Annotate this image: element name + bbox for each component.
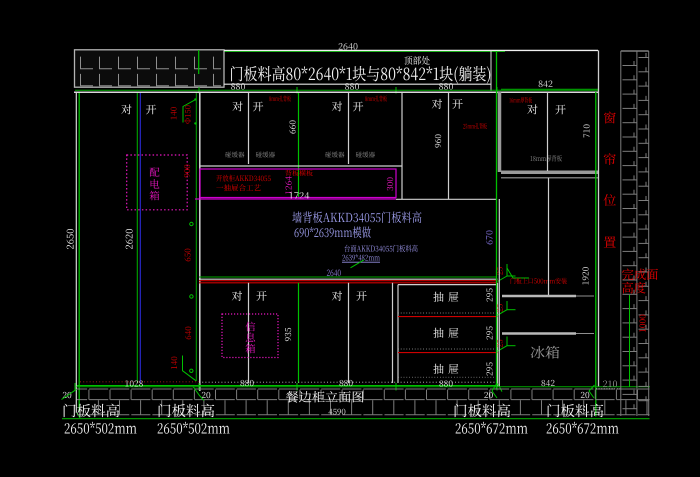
svg-text:8mm孔背板: 8mm孔背板 — [365, 94, 387, 103]
svg-text:开: 开 — [353, 99, 364, 115]
svg-text:16mm厚背板: 16mm厚背板 — [509, 96, 532, 105]
svg-text:300: 300 — [384, 177, 396, 191]
svg-text:开: 开 — [452, 96, 463, 112]
svg-text:20: 20 — [62, 389, 72, 401]
svg-text:900: 900 — [182, 164, 193, 178]
svg-text:880: 880 — [345, 80, 360, 93]
svg-text:2620: 2620 — [122, 229, 136, 250]
svg-text:对: 对 — [232, 99, 243, 115]
svg-text:880: 880 — [231, 80, 246, 93]
svg-text:1000: 1000 — [637, 314, 649, 333]
svg-text:箱: 箱 — [245, 342, 256, 357]
svg-text:295: 295 — [483, 362, 495, 376]
svg-text:295: 295 — [483, 288, 495, 302]
svg-text:842: 842 — [541, 377, 555, 389]
svg-text:2650*672mm: 2650*672mm — [455, 418, 528, 439]
svg-text:开: 开 — [253, 99, 264, 115]
svg-text:冰箱: 冰箱 — [530, 343, 560, 363]
svg-text:对: 对 — [332, 99, 343, 115]
svg-text:屉: 屉 — [448, 289, 459, 305]
svg-text:140: 140 — [169, 356, 180, 370]
svg-text:箱: 箱 — [149, 189, 160, 204]
svg-text:670: 670 — [483, 230, 496, 245]
svg-text:2650*502mm: 2650*502mm — [157, 418, 230, 439]
svg-text:抽: 抽 — [433, 289, 444, 305]
svg-text:960: 960 — [432, 134, 444, 148]
svg-text:1724: 1724 — [289, 188, 311, 202]
svg-text:抽: 抽 — [433, 325, 444, 341]
svg-text:1920: 1920 — [580, 266, 592, 285]
svg-text:842: 842 — [538, 77, 553, 90]
svg-text:935: 935 — [282, 327, 294, 341]
svg-text:置: 置 — [603, 232, 616, 251]
svg-text:8mm孔背板: 8mm孔背板 — [269, 94, 291, 103]
svg-text:碰缓器: 碰缓器 — [356, 150, 376, 159]
svg-text:Φ150: Φ150 — [183, 105, 194, 124]
svg-text:窗: 窗 — [603, 108, 616, 127]
svg-text:屉: 屉 — [448, 361, 459, 377]
svg-text:880: 880 — [439, 80, 454, 93]
svg-text:4590: 4590 — [328, 407, 346, 418]
svg-text:1028: 1028 — [125, 378, 144, 390]
svg-text:对: 对 — [121, 101, 132, 117]
svg-text:一抽屉合工艺: 一抽屉合工艺 — [216, 183, 261, 194]
svg-text:对: 对 — [432, 96, 443, 112]
svg-text:18mm厚背板: 18mm厚背板 — [530, 154, 562, 164]
svg-text:对: 对 — [232, 288, 243, 304]
svg-text:140: 140 — [169, 106, 180, 120]
svg-text:2650: 2650 — [63, 229, 77, 250]
svg-text:2650*672mm: 2650*672mm — [546, 418, 619, 439]
svg-text:2650*502mm: 2650*502mm — [64, 418, 137, 439]
svg-text:对: 对 — [332, 288, 343, 304]
svg-text:屉: 屉 — [448, 325, 459, 341]
svg-text:位: 位 — [603, 190, 616, 209]
svg-text:高度: 高度 — [622, 279, 647, 297]
svg-text:880: 880 — [439, 378, 453, 390]
svg-text:660: 660 — [287, 120, 299, 134]
svg-text:碰缓器: 碰缓器 — [256, 150, 276, 159]
svg-text:640: 640 — [183, 326, 194, 340]
svg-text:25mm孔背板: 25mm孔背板 — [463, 122, 487, 131]
svg-text:650: 650 — [183, 248, 194, 262]
svg-text:餐边柜立面图: 餐边柜立面图 — [286, 388, 365, 406]
svg-text:880: 880 — [240, 377, 254, 389]
svg-text:开: 开 — [356, 288, 367, 304]
svg-text:210: 210 — [603, 377, 618, 390]
svg-text:2640: 2640 — [327, 266, 342, 279]
svg-text:710: 710 — [581, 124, 593, 138]
svg-text:20: 20 — [580, 389, 590, 401]
svg-text:开: 开 — [555, 101, 566, 117]
svg-text:295: 295 — [483, 326, 495, 340]
svg-text:开: 开 — [256, 288, 267, 304]
svg-text:帘: 帘 — [603, 149, 616, 168]
svg-text:开: 开 — [146, 101, 157, 117]
svg-text:690*2639mm模做: 690*2639mm模做 — [294, 223, 371, 241]
svg-text:碰缓器: 碰缓器 — [325, 150, 345, 159]
svg-text:抽: 抽 — [433, 361, 444, 377]
svg-text:碰缓器: 碰缓器 — [225, 150, 245, 159]
svg-text:门板上口500mm安装: 门板上口500mm安装 — [510, 276, 567, 286]
